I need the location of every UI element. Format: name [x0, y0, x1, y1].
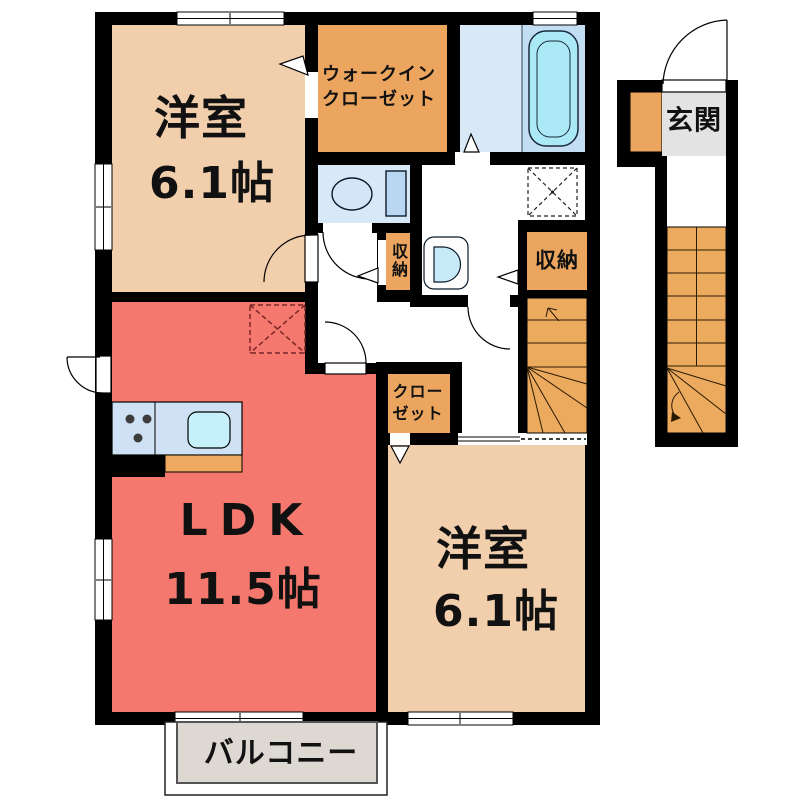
- kitchen-sink: [188, 412, 230, 448]
- bedroom-top-label: 洋室: [154, 95, 248, 141]
- bedroom-bottom-area: 6.1帖: [433, 590, 559, 634]
- internal-staircase: [527, 298, 587, 433]
- floor-plan: 洋室 6.1帖 ウォークイン クローゼット 玄関 収納 収納 クロー ゼット L…: [0, 0, 800, 800]
- bedroom-top-area: 6.1帖: [149, 162, 275, 206]
- ldk-label: LDK: [180, 499, 315, 543]
- ldk-area: 11.5帖: [164, 568, 322, 612]
- entrance-door: [662, 20, 727, 92]
- door-ldk-exterior: [67, 356, 111, 393]
- washing-machine-space: [528, 168, 577, 216]
- bedroom-bottom-label: 洋室: [436, 526, 530, 572]
- window-ldk-west: [95, 539, 112, 620]
- walk-in-closet-label-line1: ウォークイン: [322, 66, 436, 84]
- bathtub: [529, 31, 578, 146]
- counter-edge: [165, 455, 242, 472]
- washbasin: [424, 237, 468, 289]
- shoe-cabinet: [630, 92, 662, 152]
- closet-label-line2: ゼット: [392, 406, 443, 422]
- window-bath-north: [533, 12, 577, 25]
- closet-label-line1: クロー: [392, 384, 443, 400]
- walk-in-closet-label-line2: クローゼット: [322, 91, 436, 109]
- window-bedroom-top-west: [95, 164, 112, 250]
- balcony-label: バルコニー: [204, 739, 358, 769]
- window-bedroom-bottom-south: [408, 712, 513, 725]
- storage-left-label: 収納: [390, 243, 406, 279]
- bedroom-bottom-floor: [388, 445, 585, 712]
- entrance-block: [617, 20, 738, 447]
- storage-right-label: 収納: [535, 251, 579, 272]
- window-bedroom-top-north: [177, 12, 284, 25]
- external-staircase: [667, 227, 726, 433]
- entrance-label: 玄関: [666, 108, 722, 135]
